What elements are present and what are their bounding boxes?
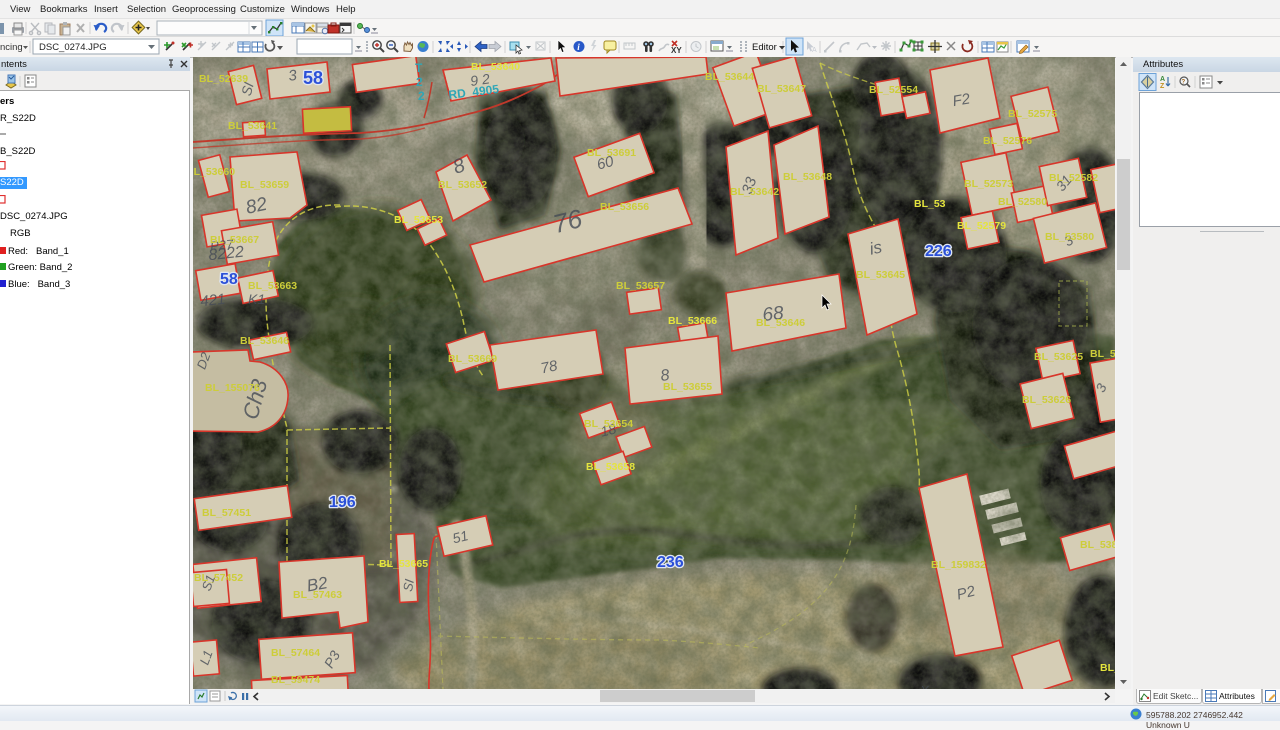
svg-text:Editor: Editor <box>752 42 777 53</box>
svg-text:BL_52582: BL_52582 <box>1049 172 1098 184</box>
svg-text:BL_53: BL_53 <box>914 198 946 210</box>
svg-text:ncing: ncing <box>0 42 23 53</box>
svg-text:236: 236 <box>657 554 684 571</box>
svg-text:58: 58 <box>220 271 238 288</box>
svg-text:?: ? <box>1182 80 1186 86</box>
svg-text:F2: F2 <box>951 90 972 110</box>
svg-text:BL_53667: BL_53667 <box>210 234 259 246</box>
svg-text:BL_538: BL_538 <box>1080 539 1115 551</box>
svg-text:BL_53626: BL_53626 <box>1022 394 1071 406</box>
svg-text:BL_53669: BL_53669 <box>448 353 497 365</box>
svg-text:BL_57464: BL_57464 <box>271 647 320 659</box>
svg-text:BL_52580: BL_52580 <box>998 196 1047 208</box>
svg-text:BL_52554: BL_52554 <box>869 84 918 96</box>
svg-text:T: T <box>415 61 423 75</box>
svg-text:A: A <box>1160 76 1165 83</box>
svg-text:BL_53641: BL_53641 <box>228 120 277 132</box>
svg-text:BL_53: BL_53 <box>1090 348 1115 360</box>
svg-text:BL_53653: BL_53653 <box>394 214 443 226</box>
svg-text:BL_53654: BL_53654 <box>584 418 633 430</box>
svg-text:Z: Z <box>1160 83 1165 90</box>
svg-text:BL_53660: BL_53660 <box>193 166 235 178</box>
svg-text:DSC_0274.JPG: DSC_0274.JPG <box>39 42 107 53</box>
svg-text:BL_53646: BL_53646 <box>756 317 805 329</box>
svg-text:BL_52576: BL_52576 <box>983 135 1032 147</box>
svg-text:BL_53648: BL_53648 <box>783 171 832 183</box>
svg-text:BL_5: BL_5 <box>1100 662 1115 674</box>
svg-text:BL_53658: BL_53658 <box>586 461 635 473</box>
svg-text:BL_53646: BL_53646 <box>240 335 289 347</box>
svg-text:XY: XY <box>671 46 682 55</box>
svg-text:BL_155076: BL_155076 <box>205 382 260 394</box>
svg-text:BL_57451: BL_57451 <box>202 507 251 519</box>
svg-text:BL_53652: BL_53652 <box>438 179 487 191</box>
svg-text:BL_53665: BL_53665 <box>379 558 428 570</box>
svg-text:A: A <box>812 47 817 54</box>
svg-text:BL_53691: BL_53691 <box>587 147 636 159</box>
svg-text:BL_59474: BL_59474 <box>271 674 320 686</box>
svg-text:2: 2 <box>416 75 423 89</box>
svg-text:BL_57463: BL_57463 <box>293 589 342 601</box>
svg-text:BL_53647: BL_53647 <box>757 83 806 95</box>
svg-text:BL_53666: BL_53666 <box>668 315 717 327</box>
svg-text:BL_53625: BL_53625 <box>1034 351 1083 363</box>
svg-text:K1: K1 <box>248 291 265 307</box>
svg-text:BL_52575: BL_52575 <box>1008 108 1057 120</box>
svg-text:2: 2 <box>418 89 425 103</box>
svg-text:421: 421 <box>200 291 227 311</box>
svg-text:196: 196 <box>329 494 356 511</box>
svg-text:BL_57452: BL_57452 <box>194 572 243 584</box>
svg-text:BL_53655: BL_53655 <box>663 381 712 393</box>
svg-text:BL_53663: BL_53663 <box>248 280 297 292</box>
svg-text:BL_52579: BL_52579 <box>957 220 1006 232</box>
svg-text:BL_53640: BL_53640 <box>471 61 520 73</box>
svg-text:58: 58 <box>303 68 323 88</box>
svg-text:BL_53657: BL_53657 <box>616 280 665 292</box>
svg-text:BL_159832: BL_159832 <box>931 559 986 571</box>
svg-text:BL_53644: BL_53644 <box>705 71 754 83</box>
svg-text:BL_53656: BL_53656 <box>600 201 649 213</box>
svg-text:BL_53642: BL_53642 <box>730 186 779 198</box>
svg-text:BL_53645: BL_53645 <box>856 269 905 281</box>
svg-text:BL_52573: BL_52573 <box>964 178 1013 190</box>
svg-text:BL_53659: BL_53659 <box>240 179 289 191</box>
svg-text:BL_53580: BL_53580 <box>1045 231 1094 243</box>
svg-text:226: 226 <box>925 243 952 260</box>
svg-text:BL_52639: BL_52639 <box>199 73 248 85</box>
